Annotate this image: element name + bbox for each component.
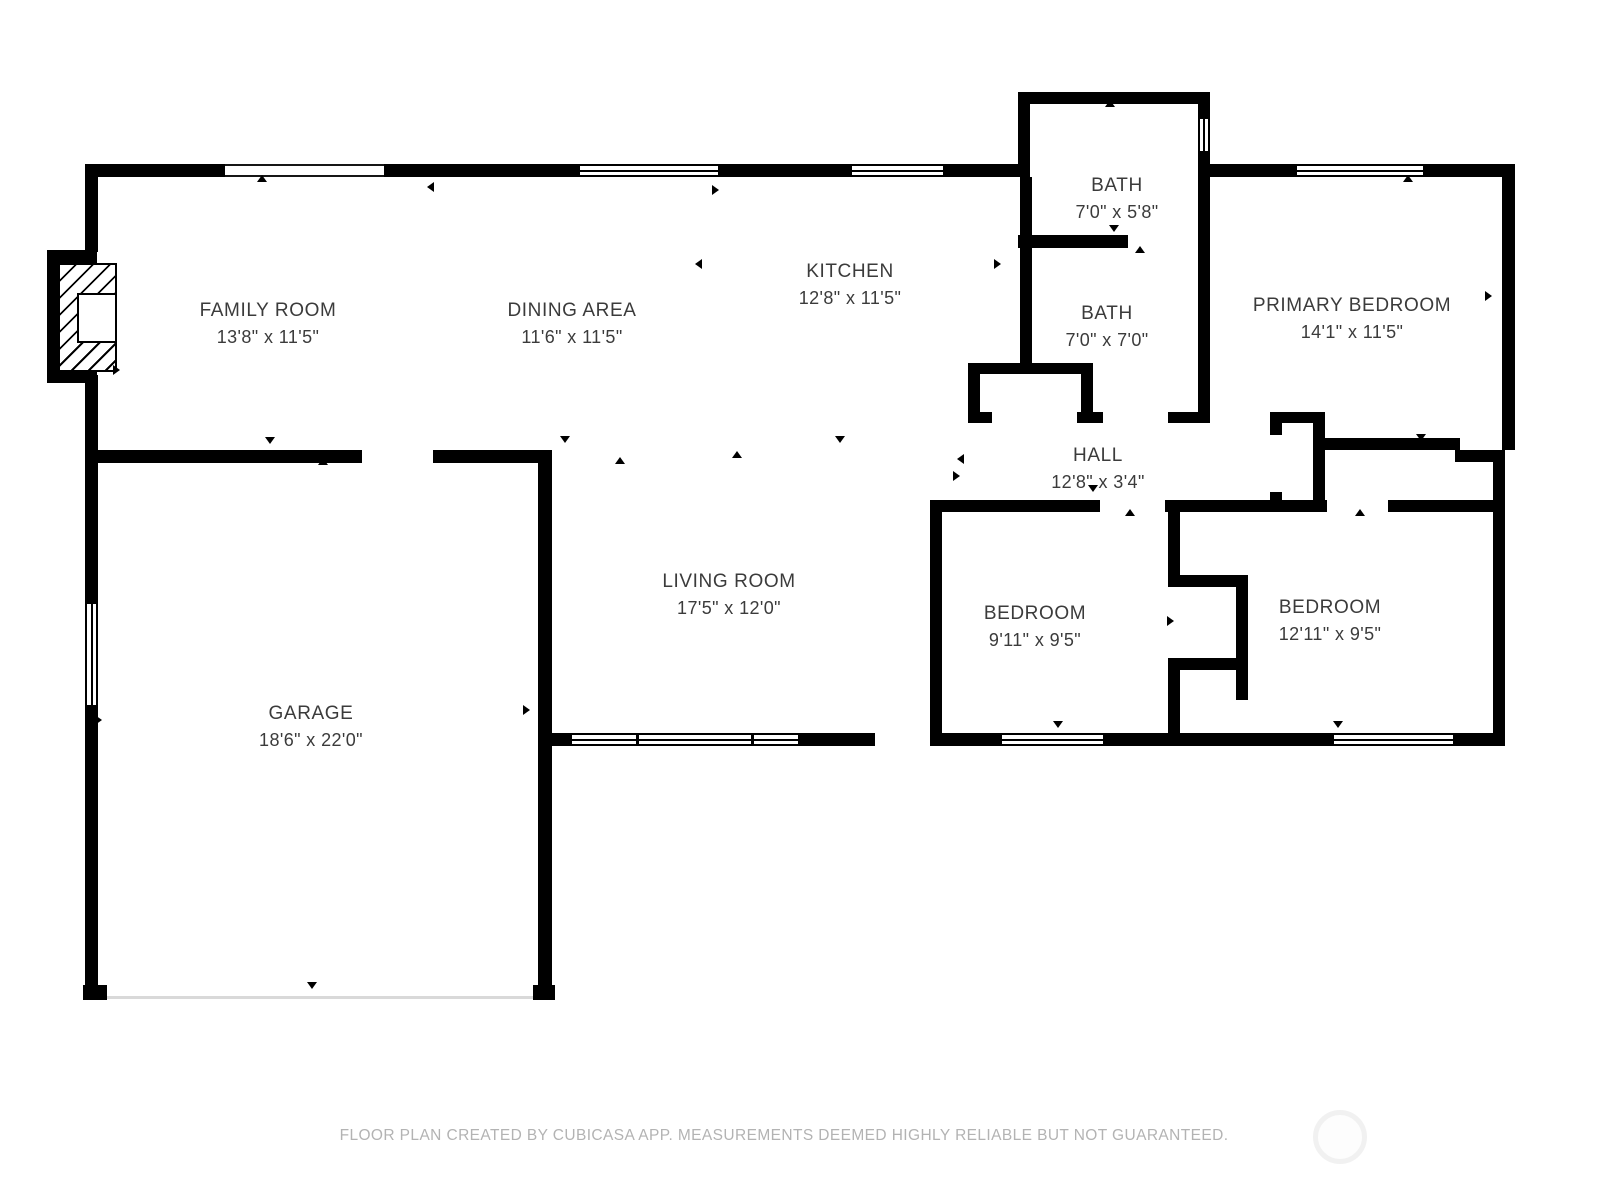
wall	[1077, 412, 1103, 423]
dimension-marker	[615, 457, 625, 464]
dimension-marker	[1167, 616, 1174, 626]
wall	[1165, 500, 1327, 512]
dimension-marker	[1416, 434, 1426, 441]
dimension-marker	[523, 705, 530, 715]
wall	[1020, 177, 1032, 363]
wall	[1198, 104, 1210, 117]
wall	[930, 500, 942, 746]
room-name: PRIMARY BEDROOM	[1253, 292, 1451, 319]
room-name: HALL	[1051, 442, 1145, 469]
room-label-garage: GARAGE18'6" x 22'0"	[259, 700, 363, 754]
dimension-marker	[732, 451, 742, 458]
dimension-marker	[257, 175, 267, 182]
dimension-marker	[318, 458, 328, 465]
wall	[968, 363, 1093, 374]
room-label-primary-bedroom: PRIMARY BEDROOM14'1" x 11'5"	[1253, 292, 1451, 346]
room-dimensions: 7'0" x 5'8"	[1075, 199, 1158, 226]
cubicasa-watermark-icon	[1313, 1110, 1367, 1164]
wall	[1168, 658, 1248, 670]
window	[1000, 733, 1105, 746]
wall	[930, 733, 1000, 746]
footer-disclaimer: FLOOR PLAN CREATED BY CUBICASA APP. MEAS…	[340, 1127, 1229, 1145]
wall	[533, 985, 555, 1000]
room-dimensions: 7'0" x 7'0"	[1065, 327, 1148, 354]
wall	[85, 463, 98, 602]
wall	[85, 707, 98, 985]
dimension-marker	[1105, 100, 1115, 107]
dimension-marker	[1485, 291, 1492, 301]
window-mullion	[751, 733, 754, 746]
room-dimensions: 17'5" x 12'0"	[662, 595, 795, 622]
room-name: FAMILY ROOM	[200, 297, 337, 324]
room-name: BATH	[1075, 172, 1158, 199]
dimension-marker	[957, 454, 964, 464]
wall	[1236, 670, 1248, 700]
wall	[968, 374, 980, 412]
dimension-marker	[1053, 721, 1063, 728]
window	[85, 602, 98, 707]
dimension-marker	[1403, 175, 1413, 182]
dimension-marker	[953, 471, 960, 481]
wall	[1425, 164, 1515, 177]
wall	[1270, 423, 1282, 435]
room-label-living-room: LIVING ROOM17'5" x 12'0"	[662, 568, 795, 622]
room-dimensions: 9'11" x 9'5"	[984, 627, 1086, 654]
room-dimensions: 11'6" x 11'5"	[507, 324, 636, 351]
wall	[1018, 235, 1128, 248]
wall	[1248, 733, 1332, 746]
wall	[1502, 164, 1515, 450]
wall	[85, 164, 98, 252]
dimension-marker	[307, 982, 317, 989]
wall	[1210, 164, 1295, 177]
room-name: GARAGE	[259, 700, 363, 727]
dimension-marker	[1333, 721, 1343, 728]
room-label-family-room: FAMILY ROOM13'8" x 11'5"	[200, 297, 337, 351]
dimension-marker	[712, 185, 719, 195]
room-name: LIVING ROOM	[662, 568, 795, 595]
room-label-dining-area: DINING AREA11'6" x 11'5"	[507, 297, 636, 351]
dimension-marker	[427, 182, 434, 192]
wall	[1168, 412, 1210, 423]
window	[570, 733, 800, 746]
wall	[384, 164, 578, 177]
room-name: DINING AREA	[507, 297, 636, 324]
room-dimensions: 18'6" x 22'0"	[259, 727, 363, 754]
room-name: KITCHEN	[799, 258, 902, 285]
wall	[1198, 235, 1210, 412]
window	[850, 164, 945, 177]
window	[578, 164, 720, 177]
room-name: BEDROOM	[1279, 594, 1382, 621]
wall	[800, 733, 875, 746]
room-label-bedroom-2: BEDROOM12'11" x 9'5"	[1279, 594, 1382, 648]
wall	[1313, 412, 1325, 512]
dimension-marker	[265, 437, 275, 444]
room-label-bath-upper: BATH7'0" x 5'8"	[1075, 172, 1158, 226]
wall	[1493, 450, 1505, 746]
dimension-marker	[560, 436, 570, 443]
dimension-marker	[835, 436, 845, 443]
room-dimensions: 14'1" x 11'5"	[1253, 319, 1451, 346]
wall	[1105, 733, 1168, 746]
floor-plan-canvas: FAMILY ROOM13'8" x 11'5"DINING AREA11'6"…	[0, 0, 1600, 1200]
dimension-marker	[1355, 509, 1365, 516]
room-dimensions: 12'8" x 11'5"	[799, 285, 902, 312]
room-dimensions: 12'8" x 3'4"	[1051, 469, 1145, 496]
wall	[433, 450, 552, 463]
room-label-bedroom-1: BEDROOM9'11" x 9'5"	[984, 600, 1086, 654]
wall	[538, 450, 552, 985]
room-name: BATH	[1065, 300, 1148, 327]
wall	[1325, 438, 1460, 450]
dimension-marker	[1109, 225, 1119, 232]
dimension-marker	[994, 259, 1001, 269]
wall	[88, 164, 225, 177]
dimension-marker	[695, 259, 702, 269]
dimension-marker	[1125, 509, 1135, 516]
wall	[945, 164, 1030, 177]
wall	[1455, 450, 1505, 462]
wall	[930, 500, 1100, 512]
window	[1198, 117, 1210, 153]
room-dimensions: 12'11" x 9'5"	[1279, 621, 1382, 648]
dimension-marker	[1135, 246, 1145, 253]
room-label-hall: HALL12'8" x 3'4"	[1051, 442, 1145, 496]
wall	[1018, 104, 1030, 164]
wall	[1168, 733, 1248, 746]
wall	[83, 985, 107, 1000]
room-name: BEDROOM	[984, 600, 1086, 627]
room-label-kitchen: KITCHEN12'8" x 11'5"	[799, 258, 902, 312]
wall	[1168, 500, 1180, 587]
wall	[1081, 374, 1093, 412]
wall	[552, 733, 570, 746]
window-mullion	[636, 733, 639, 746]
wall	[1388, 500, 1495, 512]
fireplace-firebox	[77, 293, 117, 343]
window	[1332, 733, 1455, 746]
wall	[1198, 153, 1210, 235]
wall	[968, 412, 992, 423]
room-dimensions: 13'8" x 11'5"	[200, 324, 337, 351]
door-opening	[225, 164, 384, 177]
dimension-marker	[113, 365, 120, 375]
wall	[720, 164, 850, 177]
room-label-bath-lower: BATH7'0" x 7'0"	[1065, 300, 1148, 354]
wall	[1236, 575, 1248, 670]
garage-door-line	[107, 996, 533, 999]
dimension-marker	[95, 715, 102, 725]
